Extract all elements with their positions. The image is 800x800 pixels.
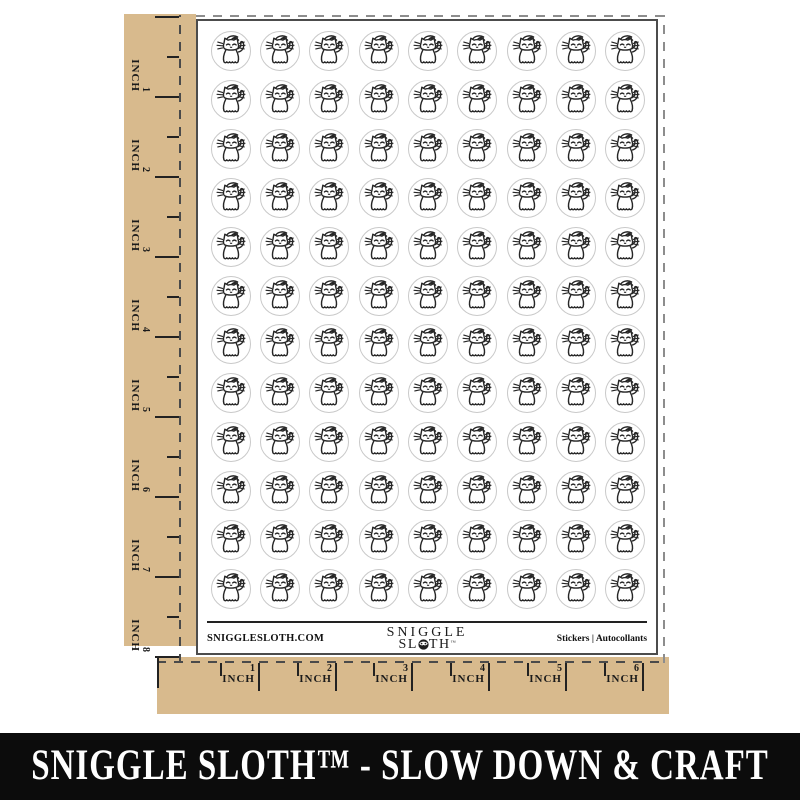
ruler-unit-label: INCH (129, 539, 140, 572)
ruler-tick (155, 416, 179, 418)
sticker-circle (359, 80, 399, 120)
winking-cat-icon (312, 474, 346, 508)
ruler-label: 1INCH (129, 46, 150, 92)
ruler-label: 4INCH (129, 286, 150, 332)
sheet-dashed-outline-right (663, 15, 665, 663)
rotated-label-wrap: 1INCH (128, 46, 150, 92)
sticker-circle (309, 276, 349, 316)
ruler-tick (167, 296, 179, 298)
winking-cat-icon (411, 572, 445, 606)
winking-cat-icon (362, 474, 396, 508)
ruler-tick (411, 663, 413, 691)
winking-cat-icon (263, 279, 297, 313)
sticker-circle (359, 276, 399, 316)
winking-cat-icon (460, 230, 494, 264)
sticker-circle (211, 80, 251, 120)
winking-cat-icon (214, 83, 248, 117)
winking-cat-icon (312, 523, 346, 557)
winking-cat-icon (362, 181, 396, 215)
sticker-circle (605, 324, 645, 364)
sticker-circle (457, 520, 497, 560)
ruler-tick (167, 136, 179, 138)
ruler-tick (335, 663, 337, 691)
winking-cat-icon (411, 83, 445, 117)
sticker-circle (359, 569, 399, 609)
winking-cat-icon (263, 376, 297, 410)
sticker-circle (309, 178, 349, 218)
winking-cat-icon (312, 132, 346, 166)
sticker-circle (309, 422, 349, 462)
sticker-circle (408, 422, 448, 462)
sticker-circle (359, 422, 399, 462)
ruler-number: 3 (140, 247, 150, 252)
sticker-circle (556, 227, 596, 267)
left-ruler-label-8: 8INCH (128, 606, 150, 652)
sticker-circle (309, 520, 349, 560)
winking-cat-icon (608, 425, 642, 459)
winking-cat-icon (510, 425, 544, 459)
winking-cat-icon (312, 425, 346, 459)
sticker-grid (206, 27, 650, 613)
winking-cat-icon (608, 474, 642, 508)
ruler-label: 5INCH (518, 664, 562, 685)
winking-cat-icon (510, 376, 544, 410)
winking-cat-icon (559, 132, 593, 166)
winking-cat-icon (510, 34, 544, 68)
left-ruler-label-4: 4INCH (128, 286, 150, 332)
winking-cat-icon (411, 327, 445, 361)
sheet-dashed-outline-top (196, 15, 664, 17)
ruler-label: 4INCH (441, 664, 485, 685)
winking-cat-icon (559, 230, 593, 264)
sticker-circle (507, 422, 547, 462)
winking-cat-icon (460, 425, 494, 459)
sticker-circle (507, 178, 547, 218)
winking-cat-icon (460, 279, 494, 313)
winking-cat-icon (460, 132, 494, 166)
winking-cat-icon (312, 376, 346, 410)
bottom-ruler-label-1: 1INCH (211, 664, 255, 685)
winking-cat-icon (559, 474, 593, 508)
sticker-circle (507, 80, 547, 120)
left-ruler-label-7: 7INCH (128, 526, 150, 572)
ruler-number: 6 (140, 487, 150, 492)
winking-cat-icon (312, 327, 346, 361)
winking-cat-icon (460, 181, 494, 215)
sticker-circle (260, 324, 300, 364)
ruler-unit-label: INCH (129, 459, 140, 492)
ruler-tick (155, 256, 179, 258)
sticker-circle (211, 569, 251, 609)
winking-cat-icon (312, 34, 346, 68)
sticker-circle (605, 178, 645, 218)
winking-cat-icon (411, 425, 445, 459)
rotated-label-wrap: 3INCH (128, 206, 150, 252)
left-ruler-label-3: 3INCH (128, 206, 150, 252)
sticker-circle (260, 422, 300, 462)
winking-cat-icon (411, 230, 445, 264)
winking-cat-icon (312, 279, 346, 313)
sticker-circle (556, 373, 596, 413)
sticker-circle (457, 31, 497, 71)
ruler-label: 3INCH (364, 664, 408, 685)
winking-cat-icon (559, 279, 593, 313)
winking-cat-icon (362, 34, 396, 68)
ruler-label: 2INCH (288, 664, 332, 685)
sloth-face-icon (418, 639, 429, 650)
winking-cat-icon (263, 327, 297, 361)
product-photo: SNIGGLESLOTH.COM SNIGGLE SLTH™ Stickers … (0, 0, 800, 800)
sheet-footer: SNIGGLESLOTH.COM SNIGGLE SLTH™ Stickers … (207, 621, 647, 650)
logo-word-sloth: SLTH™ (387, 638, 468, 650)
ruler-unit-label: INCH (222, 674, 255, 685)
winking-cat-icon (411, 474, 445, 508)
winking-cat-icon (362, 230, 396, 264)
rotated-label-wrap: 7INCH (128, 526, 150, 572)
winking-cat-icon (608, 572, 642, 606)
sticker-circle (359, 471, 399, 511)
sticker-circle (507, 520, 547, 560)
sticker-circle (211, 227, 251, 267)
sticker-circle (507, 31, 547, 71)
ruler-unit-label: INCH (299, 674, 332, 685)
winking-cat-icon (510, 83, 544, 117)
left-ruler-label-2: 2INCH (128, 126, 150, 172)
sticker-circle (309, 31, 349, 71)
sticker-circle (457, 422, 497, 462)
ruler-number: 7 (140, 567, 150, 572)
sticker-circle (457, 227, 497, 267)
sticker-circle (211, 178, 251, 218)
ruler-number: 1 (140, 87, 150, 92)
sticker-circle (408, 178, 448, 218)
winking-cat-icon (559, 181, 593, 215)
winking-cat-icon (460, 572, 494, 606)
ruler-label: 7INCH (129, 526, 150, 572)
ruler-tick (488, 663, 490, 691)
product-type-text: Stickers | Autocollants (467, 634, 647, 644)
logo-sl: SL (399, 637, 418, 652)
sticker-circle (211, 422, 251, 462)
winking-cat-icon (608, 132, 642, 166)
sticker-circle (556, 80, 596, 120)
winking-cat-icon (214, 34, 248, 68)
sticker-circle (309, 80, 349, 120)
sticker-circle (408, 373, 448, 413)
sticker-circle (556, 569, 596, 609)
bottom-ruler-label-2: 2INCH (288, 664, 332, 685)
winking-cat-icon (608, 279, 642, 313)
sticker-circle (457, 569, 497, 609)
sticker-circle (457, 129, 497, 169)
left-ruler-label-5: 5INCH (128, 366, 150, 412)
sticker-circle (260, 129, 300, 169)
sticker-circle (359, 324, 399, 364)
winking-cat-icon (362, 132, 396, 166)
winking-cat-icon (510, 230, 544, 264)
winking-cat-icon (460, 523, 494, 557)
winking-cat-icon (608, 34, 642, 68)
winking-cat-icon (559, 523, 593, 557)
sticker-circle (408, 31, 448, 71)
sticker-circle (457, 276, 497, 316)
winking-cat-icon (608, 230, 642, 264)
sticker-circle (457, 324, 497, 364)
winking-cat-icon (312, 181, 346, 215)
sticker-circle (260, 80, 300, 120)
winking-cat-icon (559, 83, 593, 117)
rotated-label-wrap: 8INCH (128, 606, 150, 652)
ruler-tick (167, 216, 179, 218)
ruler-label: 8INCH (129, 606, 150, 652)
brand-logo: SNIGGLE SLTH™ (387, 627, 468, 650)
sticker-circle (408, 520, 448, 560)
sticker-circle (457, 471, 497, 511)
sticker-circle (556, 520, 596, 560)
winking-cat-icon (559, 327, 593, 361)
winking-cat-icon (263, 572, 297, 606)
ruler-label: 1INCH (211, 664, 255, 685)
winking-cat-icon (559, 376, 593, 410)
winking-cat-icon (362, 425, 396, 459)
ruler-tick (167, 376, 179, 378)
winking-cat-icon (608, 83, 642, 117)
ruler-tick (155, 176, 179, 178)
winking-cat-icon (411, 279, 445, 313)
ruler-label: 3INCH (129, 206, 150, 252)
sticker-circle (309, 129, 349, 169)
ruler-tick (258, 663, 260, 691)
winking-cat-icon (510, 132, 544, 166)
sticker-circle (260, 178, 300, 218)
sticker-circle (605, 471, 645, 511)
winking-cat-icon (214, 425, 248, 459)
sticker-circle (507, 324, 547, 364)
sticker-circle (556, 324, 596, 364)
winking-cat-icon (263, 132, 297, 166)
logo-th: TH (429, 637, 451, 652)
rotated-label-wrap: 4INCH (128, 286, 150, 332)
sticker-circle (605, 373, 645, 413)
ruler-label: 5INCH (129, 366, 150, 412)
sticker-circle (309, 324, 349, 364)
winking-cat-icon (411, 132, 445, 166)
winking-cat-icon (460, 83, 494, 117)
ruler-tick (155, 576, 179, 578)
sticker-circle (507, 471, 547, 511)
sticker-circle (260, 520, 300, 560)
winking-cat-icon (608, 181, 642, 215)
ruler-tick (642, 663, 644, 691)
winking-cat-icon (312, 230, 346, 264)
sticker-sheet: SNIGGLESLOTH.COM SNIGGLE SLTH™ Stickers … (196, 19, 658, 655)
sticker-circle (260, 31, 300, 71)
ruler-unit-label: INCH (529, 674, 562, 685)
sticker-circle (457, 178, 497, 218)
sticker-circle (359, 373, 399, 413)
ruler-number: 5 (140, 407, 150, 412)
ruler-label: 6INCH (129, 446, 150, 492)
winking-cat-icon (263, 181, 297, 215)
sticker-circle (605, 80, 645, 120)
ruler-unit-label: INCH (129, 299, 140, 332)
sticker-circle (309, 373, 349, 413)
sticker-circle (309, 227, 349, 267)
sticker-circle (605, 31, 645, 71)
sticker-circle (309, 569, 349, 609)
winking-cat-icon (263, 230, 297, 264)
sticker-circle (605, 227, 645, 267)
winking-cat-icon (263, 425, 297, 459)
winking-cat-icon (214, 572, 248, 606)
ruler-unit-label: INCH (129, 59, 140, 92)
ruler-tick (157, 658, 159, 688)
winking-cat-icon (362, 327, 396, 361)
winking-cat-icon (460, 327, 494, 361)
ruler-label: 6INCH (595, 664, 639, 685)
ruler-tick (167, 616, 179, 618)
sticker-circle (556, 178, 596, 218)
sticker-circle (556, 471, 596, 511)
ruler-unit-label: INCH (129, 619, 140, 652)
sticker-circle (408, 80, 448, 120)
winking-cat-icon (608, 327, 642, 361)
sticker-circle (556, 276, 596, 316)
winking-cat-icon (214, 230, 248, 264)
sticker-circle (507, 227, 547, 267)
winking-cat-icon (214, 523, 248, 557)
left-ruler-label-1: 1INCH (128, 46, 150, 92)
sticker-circle (457, 80, 497, 120)
winking-cat-icon (214, 132, 248, 166)
ruler-tick (155, 496, 179, 498)
sticker-circle (556, 31, 596, 71)
sticker-circle (556, 129, 596, 169)
ruler-label: 2INCH (129, 126, 150, 172)
logo-trademark: ™ (451, 641, 456, 646)
sticker-circle (211, 276, 251, 316)
sticker-circle (507, 373, 547, 413)
winking-cat-icon (510, 327, 544, 361)
sticker-circle (359, 178, 399, 218)
winking-cat-icon (362, 572, 396, 606)
sticker-circle (260, 276, 300, 316)
sticker-circle (211, 373, 251, 413)
ruler-unit-label: INCH (606, 674, 639, 685)
sticker-circle (359, 227, 399, 267)
sticker-circle (408, 129, 448, 169)
winking-cat-icon (362, 279, 396, 313)
ruler-unit-label: INCH (452, 674, 485, 685)
winking-cat-icon (559, 34, 593, 68)
sticker-circle (605, 569, 645, 609)
sticker-circle (556, 422, 596, 462)
winking-cat-icon (460, 376, 494, 410)
left-ruler-label-6: 6INCH (128, 446, 150, 492)
winking-cat-icon (608, 376, 642, 410)
winking-cat-icon (214, 474, 248, 508)
winking-cat-icon (263, 83, 297, 117)
ruler-tick (565, 663, 567, 691)
winking-cat-icon (312, 572, 346, 606)
sticker-circle (408, 569, 448, 609)
winking-cat-icon (510, 474, 544, 508)
winking-cat-icon (312, 83, 346, 117)
ruler-tick (155, 16, 179, 18)
winking-cat-icon (214, 279, 248, 313)
bottom-ruler-label-5: 5INCH (518, 664, 562, 685)
ruler-tick (167, 56, 179, 58)
ruler-unit-label: INCH (375, 674, 408, 685)
winking-cat-icon (411, 523, 445, 557)
ruler-unit-label: INCH (129, 139, 140, 172)
ruler-unit-label: INCH (129, 379, 140, 412)
winking-cat-icon (214, 376, 248, 410)
winking-cat-icon (460, 474, 494, 508)
sticker-circle (408, 276, 448, 316)
sticker-circle (507, 129, 547, 169)
winking-cat-icon (608, 523, 642, 557)
winking-cat-icon (362, 376, 396, 410)
bottom-ruler-label-4: 4INCH (441, 664, 485, 685)
sticker-circle (605, 422, 645, 462)
winking-cat-icon (510, 279, 544, 313)
sticker-circle (260, 569, 300, 609)
winking-cat-icon (510, 523, 544, 557)
sticker-circle (211, 31, 251, 71)
winking-cat-icon (214, 181, 248, 215)
sticker-circle (457, 373, 497, 413)
sticker-circle (359, 520, 399, 560)
winking-cat-icon (214, 327, 248, 361)
ruler-tick (167, 536, 179, 538)
rotated-label-wrap: 6INCH (128, 446, 150, 492)
sticker-circle (408, 227, 448, 267)
sticker-circle (260, 373, 300, 413)
ruler-tick (155, 336, 179, 338)
ruler-number: 8 (140, 647, 150, 652)
winking-cat-icon (411, 34, 445, 68)
winking-cat-icon (510, 181, 544, 215)
sticker-circle (260, 227, 300, 267)
winking-cat-icon (263, 34, 297, 68)
ruler-unit-label: INCH (129, 219, 140, 252)
sticker-circle (408, 324, 448, 364)
brand-banner: SNIGGLE SLOTH™ - SLOW DOWN & CRAFT (0, 733, 800, 800)
sticker-circle (408, 471, 448, 511)
sticker-circle (359, 31, 399, 71)
winking-cat-icon (460, 34, 494, 68)
left-ruler-edge-line (179, 15, 181, 663)
sticker-circle (605, 276, 645, 316)
winking-cat-icon (411, 376, 445, 410)
bottom-ruler-label-3: 3INCH (364, 664, 408, 685)
sticker-circle (605, 129, 645, 169)
ruler-tick (167, 456, 179, 458)
sticker-circle (211, 324, 251, 364)
sticker-circle (211, 129, 251, 169)
rotated-label-wrap: 5INCH (128, 366, 150, 412)
sticker-circle (211, 471, 251, 511)
winking-cat-icon (559, 572, 593, 606)
bottom-ruler-label-6: 6INCH (595, 664, 639, 685)
sticker-circle (359, 129, 399, 169)
ruler-tick (155, 96, 179, 98)
banner-text: SNIGGLE SLOTH™ - SLOW DOWN & CRAFT (31, 742, 769, 791)
sticker-circle (211, 520, 251, 560)
winking-cat-icon (263, 474, 297, 508)
rotated-label-wrap: 2INCH (128, 126, 150, 172)
